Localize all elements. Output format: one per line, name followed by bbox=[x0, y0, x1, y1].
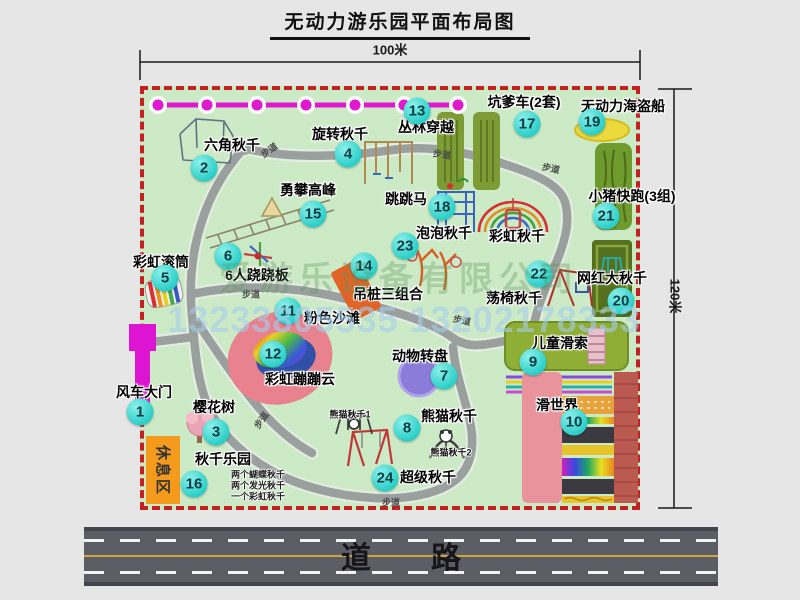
dimension-height-label: 120米 bbox=[667, 279, 686, 314]
attraction-badge-20: 20 bbox=[608, 288, 635, 315]
attraction-badge-18: 18 bbox=[429, 194, 456, 221]
attraction-badge-21: 21 bbox=[593, 203, 620, 230]
attraction-badge-12: 12 bbox=[260, 341, 287, 368]
attraction-label-2: 六角秋千 bbox=[204, 135, 260, 155]
attraction-badge-23: 23 bbox=[392, 233, 419, 260]
attraction-label-22: 荡椅秋千 bbox=[486, 288, 542, 308]
trail-label-3: 步道 bbox=[242, 288, 260, 301]
attraction-label-3: 樱花树 bbox=[193, 397, 235, 417]
road-label: 道 路 bbox=[84, 533, 718, 577]
attraction-label-8: 熊猫秋千 bbox=[421, 406, 477, 426]
attraction-badge-19: 19 bbox=[579, 109, 606, 136]
attraction-badge-22: 22 bbox=[526, 261, 553, 288]
attraction-badge-9: 9 bbox=[520, 349, 547, 376]
attraction-badge-4: 4 bbox=[335, 141, 362, 168]
attraction-badge-14: 14 bbox=[351, 253, 378, 280]
extra-label-1: 熊猫秋千1 bbox=[329, 408, 370, 421]
trail-label-1: 步道 bbox=[432, 146, 452, 161]
attraction-label-11: 粉色沙滩 bbox=[304, 308, 360, 328]
trail-label-6: 步道 bbox=[382, 496, 400, 509]
seesaw-spinner-icon bbox=[244, 242, 272, 266]
attraction-badge-16: 16 bbox=[181, 471, 208, 498]
rest-area: 休息区 bbox=[146, 436, 180, 504]
extra-label-2: 熊猫秋千2 bbox=[430, 446, 471, 459]
attraction-label-24: 超级秋千 bbox=[400, 467, 456, 487]
attraction-badge-2: 2 bbox=[191, 155, 218, 182]
attraction-badge-13: 13 bbox=[404, 98, 431, 125]
attraction-badge-1: 1 bbox=[127, 399, 154, 426]
dimension-width-label: 100米 bbox=[373, 40, 408, 59]
attraction-label-17: 坑爹车(2套) bbox=[487, 92, 560, 112]
super-swing-icon bbox=[348, 430, 392, 466]
attraction-badge-11: 11 bbox=[275, 298, 302, 325]
extra-label-0: 彩虹秋千 bbox=[489, 226, 545, 246]
attraction-badge-3: 3 bbox=[203, 419, 230, 446]
attraction-label-18: 跳跳马 bbox=[385, 189, 427, 209]
attraction-label-16: 秋千乐园 bbox=[195, 449, 251, 469]
attraction-label-20: 网红大秋千 bbox=[577, 268, 647, 288]
page-title: 无动力游乐园平面布局图 bbox=[0, 7, 800, 40]
attraction-label-14: 吊桩三组合 bbox=[353, 284, 423, 304]
attraction-badge-10: 10 bbox=[561, 409, 588, 436]
attraction-badge-5: 5 bbox=[152, 265, 179, 292]
attraction-label-23: 泡泡秋千 bbox=[416, 223, 472, 243]
swing-park-note-2: 一个彩虹秋千 bbox=[231, 490, 285, 503]
road: 道 路 bbox=[84, 527, 718, 586]
layout-canvas: 无动力游乐园平面布局图 100米 120米 bbox=[0, 0, 800, 600]
attraction-badge-6: 6 bbox=[215, 243, 242, 270]
park-map: 休息区 爱游乐设备有限公司 13233805535 13202178333 风车… bbox=[140, 86, 640, 510]
attraction-label-4: 旋转秋千 bbox=[312, 124, 368, 144]
attraction-label-6: 6人跷跷板 bbox=[225, 265, 289, 285]
attraction-badge-8: 8 bbox=[394, 415, 421, 442]
attraction-badge-17: 17 bbox=[514, 111, 541, 138]
attraction-badge-24: 24 bbox=[372, 465, 399, 492]
attraction-badge-15: 15 bbox=[300, 201, 327, 228]
attraction-label-15: 勇攀高峰 bbox=[280, 180, 336, 200]
attraction-label-12: 彩虹蹦蹦云 bbox=[265, 369, 335, 389]
attraction-badge-7: 7 bbox=[431, 363, 458, 390]
